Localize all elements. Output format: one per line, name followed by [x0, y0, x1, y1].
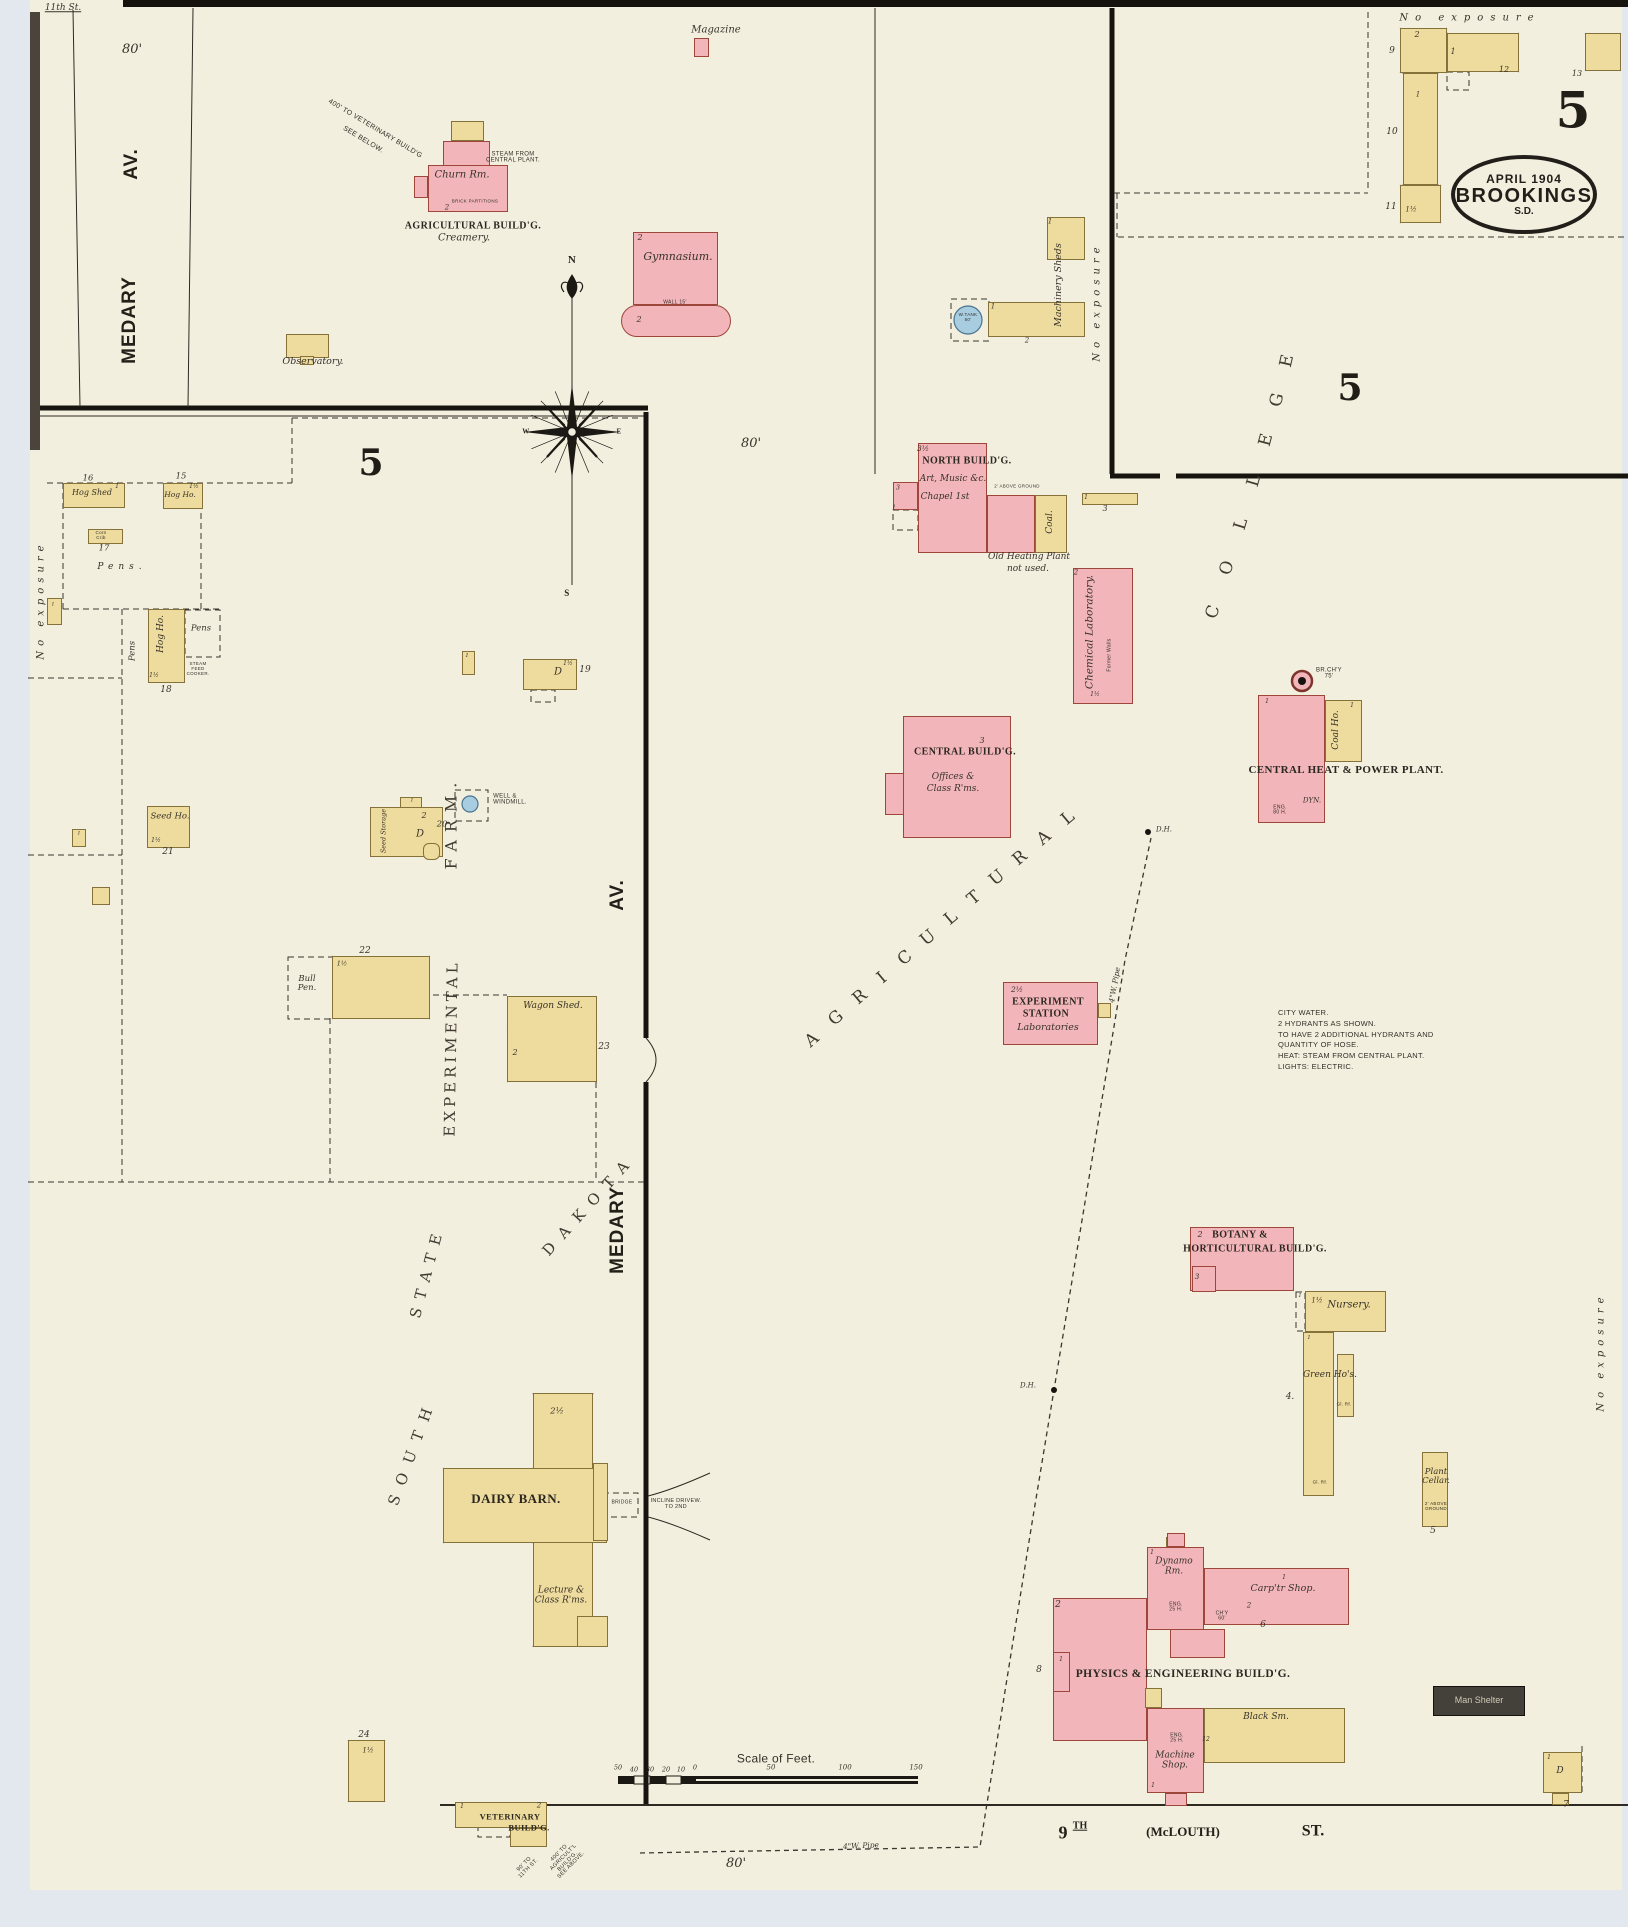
map-label: 1: [1450, 48, 1455, 56]
map-label: No exposure: [1399, 14, 1540, 25]
map-label: Chapel 1st: [921, 493, 970, 503]
building: [1167, 1533, 1185, 1547]
map-label: 6: [1260, 1621, 1266, 1631]
map-label: 1: [1547, 1755, 1551, 1761]
map-label: Coal Ho.: [1332, 710, 1342, 749]
map-label: 80': [741, 437, 761, 451]
map-label: not used.: [1007, 565, 1049, 575]
map-label: 24: [358, 1731, 369, 1741]
map-label: CH'Y 60': [1216, 1612, 1229, 1623]
map-label: 1: [51, 602, 54, 607]
map-label: 1: [892, 505, 896, 512]
ink-stamp: Man Shelter: [1455, 1696, 1504, 1706]
scale-title: Scale of Feet.: [737, 1753, 815, 1766]
map-label: Hog Ho.: [157, 615, 167, 653]
map-label: 2: [1025, 337, 1029, 344]
map-label: 23: [598, 1043, 609, 1053]
map-label: 2: [1074, 569, 1078, 576]
map-label: 8: [1036, 1666, 1042, 1676]
map-label: STEAM FEED COOKER.: [187, 662, 210, 676]
map-label: 9: [1389, 47, 1395, 57]
city-water-note: CITY WATER. 2 HYDRANTS AS SHOWN. TO HAVE…: [1278, 1008, 1434, 1073]
building: [1403, 73, 1438, 185]
map-label: 22: [359, 947, 370, 957]
street-label-mclouth: (McLOUTH): [1146, 1825, 1220, 1839]
map-label: 5: [1430, 1527, 1436, 1537]
building: [1082, 493, 1138, 505]
building-label-plant-cellar: Plant Cellar.: [1422, 1468, 1450, 1486]
map-label: 1: [410, 798, 413, 803]
map-label: 2: [1414, 31, 1419, 39]
stamp-city: BROOKINGS: [1456, 186, 1593, 206]
map-label: Seed Storage: [381, 809, 388, 853]
building-plant-cellar: [1422, 1452, 1448, 1527]
stamp-date: APRIL 1904: [1486, 172, 1562, 186]
map-label: BUILD'G.: [508, 1824, 549, 1833]
map-label: 1: [1048, 218, 1052, 225]
building-magazine: [694, 38, 709, 57]
map-label: Former Walls: [1107, 638, 1112, 671]
building-greenhouse: [1303, 1332, 1334, 1496]
building-label-gymnasium: Gymnasium.: [643, 251, 712, 263]
street-label-9th: 9: [1059, 1823, 1068, 1842]
building-machinery-shed: [988, 302, 1085, 337]
map-label: STATION: [1023, 1010, 1069, 1021]
building: [1098, 1003, 1111, 1018]
map-label: 1: [1265, 699, 1269, 705]
map-label: 1½: [149, 673, 159, 679]
map-label: 1: [1350, 703, 1354, 709]
street-label-medary: MEDARY: [608, 1186, 628, 1274]
compass-rose-icon: [492, 250, 652, 600]
map-label: 1½: [1311, 1297, 1322, 1304]
building-creamery-annex: [451, 121, 484, 141]
map-label: 17: [99, 545, 110, 554]
map-label: 2: [637, 234, 642, 242]
building-label-veterinary: VETERINARY: [480, 1813, 541, 1822]
map-label: DYN.: [1303, 797, 1321, 804]
building-label-agricultural-buildg: AGRICULTURAL BUILD'G.: [405, 222, 541, 233]
building: [577, 1616, 608, 1647]
map-label: STEAM FROM CENTRAL PLANT.: [486, 152, 540, 165]
building-label-central-buildg: CENTRAL BUILD'G.: [914, 748, 1016, 759]
building-label-chemical-laboratory: Chemical Laboratory.: [1084, 575, 1095, 689]
map-label: 0: [693, 1765, 697, 1772]
map-label: 1: [465, 654, 469, 660]
building-label-blacksmith: Black Sm.: [1243, 1713, 1289, 1723]
map-label: Pens.: [97, 563, 146, 573]
map-label: 2: [1247, 1602, 1251, 1609]
map-label: 1: [1416, 91, 1420, 98]
map-label: 21: [162, 848, 173, 858]
street-label-medary: MEDARY: [120, 276, 140, 364]
building-label-greenhouses: Green Ho's.: [1303, 1371, 1357, 1381]
building: [593, 1463, 608, 1541]
map-label: 40: [630, 1767, 638, 1774]
building-label-dairy-barn: DAIRY BARN.: [471, 1492, 560, 1506]
map-label: ENG. 25 H.: [1170, 1734, 1183, 1745]
map-label: 1½: [1405, 206, 1416, 213]
map-label: BR.CH'Y 75': [1316, 668, 1342, 681]
map-label: 12: [1202, 1737, 1210, 1743]
building: [1400, 185, 1441, 223]
map-label: 2: [1197, 1231, 1202, 1239]
building: [1585, 33, 1621, 71]
building-label-carpenter-shop: Carp'tr Shop.: [1251, 1584, 1316, 1594]
map-label: Pens: [129, 641, 138, 661]
map-label: D.H.: [1156, 826, 1172, 833]
map-label: No exposure: [1093, 242, 1104, 361]
map-label: D.H.: [1020, 1382, 1036, 1389]
map-label: 1½: [563, 661, 573, 667]
map-label: No exposure: [1597, 1292, 1608, 1411]
map-label: 7: [1563, 1801, 1569, 1811]
well-windmill-label: WELL & WINDMILL.: [493, 794, 527, 807]
building: [1400, 28, 1447, 73]
map-label: ST.: [1302, 1824, 1324, 1841]
building: [1145, 1688, 1162, 1708]
map-label: Bull Pen.: [298, 975, 317, 993]
building: [92, 887, 110, 905]
building-label-hog-shed: Hog Shed: [72, 489, 112, 497]
building-label-physics-engineering: PHYSICS & ENGINEERING BUILD'G.: [1076, 1668, 1291, 1680]
map-label: 10: [1386, 128, 1397, 138]
map-label: 3: [1195, 1273, 1200, 1281]
map-label: 3: [896, 485, 900, 492]
map-label: D: [1556, 1767, 1563, 1777]
map-label: 2: [512, 1049, 517, 1057]
map-label: 50: [767, 1764, 776, 1771]
map-label: D: [416, 830, 424, 841]
map-label: Creamery.: [438, 234, 490, 245]
map-label: 3: [1102, 505, 1107, 513]
map-label: BRICK PARTITIONS: [452, 200, 498, 205]
map-label: 11: [1385, 203, 1396, 213]
map-label: 1: [1307, 1336, 1311, 1342]
map-label: ENG. 80 H.: [1273, 806, 1286, 817]
map-label: 3: [979, 737, 984, 745]
map-label: 1½: [1090, 692, 1100, 698]
map-label: 18: [160, 686, 171, 696]
map-label: Pens: [191, 625, 211, 634]
block-number-5: 5: [1337, 369, 1362, 407]
map-label: D: [554, 668, 562, 679]
map-label: Laboratories: [1017, 1023, 1079, 1033]
map-label: BRIDGE: [612, 1500, 633, 1505]
map-label: 15: [176, 473, 187, 482]
map-label: 2' ABOVE GROUND: [1425, 1502, 1447, 1512]
map-label: 80': [122, 43, 142, 57]
building: [423, 843, 440, 860]
map-label: 2: [421, 812, 426, 820]
map-label: 2½: [550, 1408, 564, 1417]
map-label: 1: [991, 303, 995, 310]
map-label: INCLINE DRIVEW. TO 2ND: [651, 1499, 702, 1511]
map-label: 2: [1055, 1601, 1061, 1611]
stamp-state: S.D.: [1514, 206, 1533, 217]
building: [414, 176, 428, 198]
map-label: TH: [1073, 1822, 1087, 1833]
sheet-number: 5: [1556, 84, 1591, 137]
map-title-stamp: APRIL 1904 BROOKINGS S.D.: [1451, 155, 1597, 234]
map-label: 1½: [362, 1747, 373, 1754]
block-number-5: 5: [358, 444, 383, 482]
map-label: 1: [1151, 1783, 1155, 1789]
sanborn-map-sheet: 11th St.80'AV.MEDARYMagazine400' TO VETE…: [0, 0, 1628, 1927]
building-label-observatory: Observatory.: [282, 357, 343, 367]
building-label-seed-house: Seed Ho.: [150, 813, 189, 822]
map-label: Old Heating Plant: [988, 553, 1070, 563]
map-label: 1½: [189, 484, 199, 490]
building-label-nursery: Nursery.: [1327, 1301, 1370, 1312]
building-label-machinery-sheds: Machinery Sheds: [1054, 243, 1064, 327]
building-chemical-laboratory: [1073, 568, 1133, 704]
map-label: Dynamo Rm.: [1155, 1557, 1192, 1576]
map-label: ENG. 25 H.: [1169, 1603, 1182, 1614]
map-label: 80': [726, 1857, 746, 1871]
map-label: 20: [662, 1767, 670, 1774]
map-label: 1: [1298, 1294, 1302, 1300]
map-label: Lecture & Class R'ms.: [535, 1586, 588, 1605]
map-label: Gl. Rf.: [1313, 1481, 1328, 1486]
map-label: 2: [445, 204, 449, 211]
water-tank-label: W.TANK 60': [959, 313, 978, 323]
map-label: EXPERIMENTAL: [443, 959, 462, 1137]
map-label: 3½: [917, 445, 929, 453]
building-boiler-room: [1170, 1629, 1225, 1658]
map-label: 4.: [1286, 1393, 1295, 1403]
map-label: Churn Rm.: [434, 171, 489, 182]
building-label-experiment-station: EXPERIMENT: [1012, 998, 1084, 1009]
map-label: 1: [115, 484, 119, 490]
building-observatory: [286, 334, 329, 358]
map-label: 1: [460, 1804, 464, 1810]
building-label-botany: BOTANY &: [1212, 1231, 1268, 1242]
building-label-machine-shop: Machine Shop.: [1155, 1751, 1194, 1770]
map-label: 1½: [151, 838, 161, 844]
building-label-magazine: Magazine: [691, 26, 740, 37]
map-label: 10: [677, 1767, 685, 1774]
map-label: 16: [83, 475, 94, 484]
building: [885, 773, 904, 815]
building-old-heating-plant: [987, 495, 1035, 553]
map-label: 1: [77, 831, 80, 836]
map-label: 12: [1499, 66, 1509, 74]
map-label: WALL 15': [663, 300, 687, 305]
map-label: FARM.: [444, 775, 461, 870]
building-label-wagon-shed: Wagon Shed.: [523, 1002, 583, 1012]
map-label: Class R'ms.: [927, 785, 980, 795]
map-label: Gl. Rf.: [1337, 1403, 1352, 1408]
map-label: 1: [1150, 1550, 1154, 1556]
map-label: 150: [909, 1764, 922, 1771]
map-label: 1: [1059, 1657, 1063, 1663]
map-label: 1: [1084, 495, 1088, 501]
map-label: Offices &: [932, 773, 975, 783]
map-label: 30: [646, 1767, 654, 1774]
map-label: 2½: [1011, 986, 1023, 994]
map-label: Corn Crib: [96, 531, 107, 541]
map-label: 2' ABOVE GROUND: [994, 485, 1040, 490]
map-label: 1: [1282, 1575, 1286, 1581]
map-label: 13: [1572, 70, 1582, 78]
map-linework: [0, 0, 1628, 1927]
map-label: 1½: [337, 961, 347, 968]
street-label-11th: 11th St.: [45, 4, 81, 14]
street-label-medary-av: AV.: [122, 148, 142, 180]
map-label: Coal.: [1046, 510, 1056, 533]
map-label: 50: [614, 1765, 622, 1772]
building-label-central-heat-power-plant: CENTRAL HEAT & POWER PLANT.: [1248, 765, 1443, 777]
building-label-north-buildg: NORTH BUILD'G.: [922, 457, 1011, 468]
map-label: Art, Music &c.: [920, 475, 986, 485]
street-label-medary-av: AV.: [608, 879, 628, 911]
map-label: No exposure: [37, 540, 48, 659]
building-greenhouse: [1337, 1354, 1354, 1417]
map-label: 19: [579, 666, 590, 676]
map-label: Hog Ho.: [164, 491, 196, 499]
map-label: HORTICULTURAL BUILD'G.: [1183, 1245, 1327, 1256]
map-label: 2: [537, 1802, 541, 1809]
map-label: 100: [838, 1764, 851, 1771]
building: [1165, 1793, 1187, 1806]
